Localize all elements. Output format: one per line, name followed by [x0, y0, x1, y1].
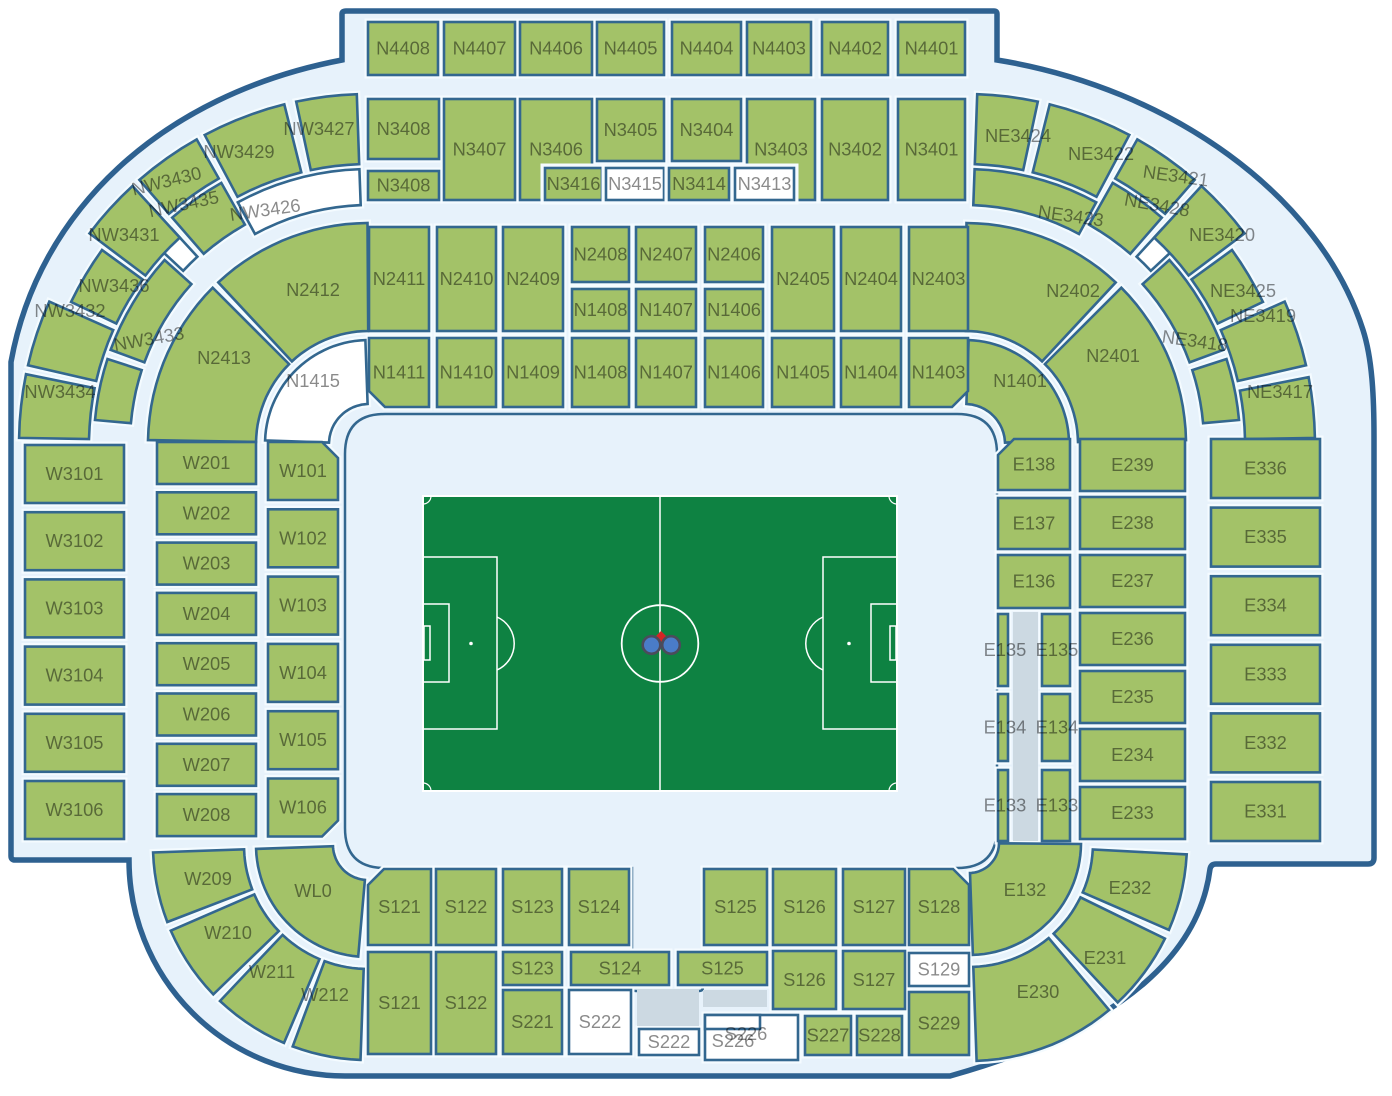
svg-text:N3401: N3401 [905, 139, 959, 160]
svg-text:E135: E135 [984, 639, 1027, 660]
svg-text:N4402: N4402 [828, 38, 882, 59]
svg-text:W207: W207 [183, 754, 231, 775]
svg-text:W201: W201 [183, 452, 231, 473]
svg-text:N2412: N2412 [286, 279, 340, 300]
svg-text:W104: W104 [279, 662, 327, 683]
svg-text:N1403: N1403 [912, 362, 966, 383]
svg-text:S125: S125 [714, 896, 757, 917]
svg-text:S221: S221 [511, 1011, 554, 1032]
svg-text:E134: E134 [984, 717, 1027, 738]
svg-text:E234: E234 [1111, 744, 1154, 765]
svg-text:N2404: N2404 [844, 268, 898, 289]
svg-text:E235: E235 [1111, 686, 1154, 707]
svg-text:N2402: N2402 [1046, 280, 1100, 301]
svg-text:W3103: W3103 [46, 597, 104, 618]
svg-text:NW3431: NW3431 [88, 224, 159, 245]
svg-text:E230: E230 [1017, 981, 1060, 1002]
svg-text:E331: E331 [1244, 801, 1287, 822]
svg-text:N1411: N1411 [373, 362, 426, 383]
svg-text:N1408: N1408 [574, 299, 628, 320]
svg-text:W3106: W3106 [46, 799, 104, 820]
svg-text:N2411: N2411 [373, 268, 426, 289]
svg-text:W3105: W3105 [46, 732, 104, 753]
svg-text:S228: S228 [858, 1025, 901, 1046]
svg-text:S222: S222 [579, 1011, 622, 1032]
svg-text:N3406: N3406 [529, 139, 583, 160]
svg-text:W210: W210 [204, 922, 252, 943]
svg-text:N3405: N3405 [604, 119, 658, 140]
svg-text:N4405: N4405 [604, 38, 658, 59]
svg-text:E233: E233 [1111, 802, 1154, 823]
svg-text:N2401: N2401 [1086, 345, 1140, 366]
svg-text:W208: W208 [183, 804, 231, 825]
svg-text:N2406: N2406 [707, 244, 761, 265]
svg-text:S129: S129 [918, 959, 961, 980]
svg-text:S229: S229 [918, 1013, 961, 1034]
svg-text:W202: W202 [183, 502, 231, 523]
svg-text:W102: W102 [279, 527, 327, 548]
svg-text:W205: W205 [183, 653, 231, 674]
svg-text:S124: S124 [578, 896, 621, 917]
svg-text:NW3436: NW3436 [78, 275, 149, 296]
svg-text:S121: S121 [378, 896, 421, 917]
svg-text:NW3432: NW3432 [34, 300, 105, 321]
svg-text:S226: S226 [712, 1030, 755, 1051]
svg-text:E334: E334 [1244, 595, 1287, 616]
svg-text:N1406: N1406 [707, 299, 761, 320]
svg-text:N2405: N2405 [776, 268, 830, 289]
svg-text:N1406: N1406 [707, 362, 761, 383]
svg-text:N1407: N1407 [639, 299, 693, 320]
svg-text:N3414: N3414 [672, 173, 726, 194]
svg-text:E134: E134 [1036, 717, 1079, 738]
svg-text:N1409: N1409 [506, 362, 560, 383]
svg-text:N1401: N1401 [993, 370, 1047, 391]
svg-text:N3408: N3408 [377, 175, 431, 196]
svg-text:N4403: N4403 [752, 38, 806, 59]
svg-text:N1405: N1405 [776, 362, 830, 383]
svg-text:N2403: N2403 [912, 268, 966, 289]
svg-text:NW3427: NW3427 [283, 118, 354, 139]
svg-text:E136: E136 [1013, 571, 1056, 592]
svg-text:N4407: N4407 [453, 38, 507, 59]
svg-text:N2408: N2408 [574, 244, 628, 265]
svg-text:N4408: N4408 [376, 38, 430, 59]
svg-text:NE3424: NE3424 [985, 125, 1051, 146]
svg-text:E135: E135 [1036, 639, 1079, 660]
svg-text:W101: W101 [279, 460, 327, 481]
svg-text:W3101: W3101 [46, 463, 104, 484]
svg-text:E231: E231 [1084, 947, 1127, 968]
svg-text:S123: S123 [511, 958, 554, 979]
svg-text:S123: S123 [511, 896, 554, 917]
svg-text:NW3434: NW3434 [24, 381, 95, 402]
svg-text:N1410: N1410 [440, 362, 494, 383]
svg-text:N2413: N2413 [197, 347, 251, 368]
svg-text:E335: E335 [1244, 526, 1287, 547]
svg-text:W106: W106 [279, 797, 327, 818]
svg-text:NW3429: NW3429 [203, 141, 274, 162]
svg-text:E238: E238 [1111, 512, 1154, 533]
svg-text:W212: W212 [301, 984, 349, 1005]
svg-text:S124: S124 [599, 958, 642, 979]
svg-text:WL0: WL0 [294, 880, 332, 901]
svg-text:S126: S126 [783, 969, 826, 990]
svg-text:N3416: N3416 [547, 173, 601, 194]
svg-text:NE3419: NE3419 [1230, 305, 1296, 326]
svg-text:E333: E333 [1244, 663, 1287, 684]
svg-text:N4406: N4406 [529, 38, 583, 59]
svg-text:N4401: N4401 [905, 38, 959, 59]
svg-text:W103: W103 [279, 595, 327, 616]
svg-text:S127: S127 [853, 969, 896, 990]
svg-text:S227: S227 [807, 1025, 850, 1046]
svg-text:E332: E332 [1244, 732, 1287, 753]
svg-text:S222: S222 [648, 1031, 691, 1052]
svg-text:E133: E133 [984, 795, 1027, 816]
svg-text:W209: W209 [184, 868, 232, 889]
svg-text:N3402: N3402 [828, 139, 882, 160]
svg-text:N1408: N1408 [574, 362, 628, 383]
svg-text:S126: S126 [783, 896, 826, 917]
svg-text:W3104: W3104 [46, 665, 104, 686]
svg-text:S127: S127 [853, 896, 896, 917]
svg-text:E138: E138 [1013, 454, 1056, 475]
svg-text:W105: W105 [279, 729, 327, 750]
svg-text:W206: W206 [183, 704, 231, 725]
svg-text:N2407: N2407 [639, 244, 693, 265]
svg-text:N4404: N4404 [680, 38, 734, 59]
svg-text:N1404: N1404 [844, 362, 898, 383]
svg-text:NE3425: NE3425 [1210, 280, 1276, 301]
svg-text:S125: S125 [701, 958, 744, 979]
svg-text:N3407: N3407 [453, 139, 507, 160]
svg-text:E236: E236 [1111, 628, 1154, 649]
svg-text:N3404: N3404 [680, 119, 734, 140]
svg-text:E237: E237 [1111, 570, 1154, 591]
svg-text:NE3422: NE3422 [1068, 143, 1134, 164]
svg-text:S122: S122 [445, 896, 488, 917]
svg-text:E132: E132 [1004, 879, 1047, 900]
svg-text:S121: S121 [378, 992, 421, 1013]
svg-text:E232: E232 [1109, 877, 1152, 898]
svg-text:N2409: N2409 [506, 268, 560, 289]
svg-text:E239: E239 [1111, 454, 1154, 475]
svg-text:W3102: W3102 [46, 530, 104, 551]
svg-text:S122: S122 [445, 992, 488, 1013]
svg-text:W203: W203 [183, 553, 231, 574]
svg-text:E133: E133 [1036, 795, 1079, 816]
svg-text:N3408: N3408 [377, 118, 431, 139]
svg-text:W204: W204 [183, 603, 231, 624]
svg-text:N3415: N3415 [608, 173, 662, 194]
svg-text:N1407: N1407 [639, 362, 693, 383]
svg-text:N2410: N2410 [440, 268, 494, 289]
svg-text:N3413: N3413 [738, 173, 792, 194]
svg-text:W211: W211 [249, 961, 295, 982]
svg-text:N1415: N1415 [286, 370, 340, 391]
svg-text:E336: E336 [1244, 458, 1287, 479]
svg-text:NE3420: NE3420 [1189, 224, 1255, 245]
svg-text:E137: E137 [1013, 513, 1056, 534]
svg-text:N3403: N3403 [754, 139, 808, 160]
svg-text:S128: S128 [918, 896, 961, 917]
svg-text:NE3417: NE3417 [1247, 381, 1313, 402]
